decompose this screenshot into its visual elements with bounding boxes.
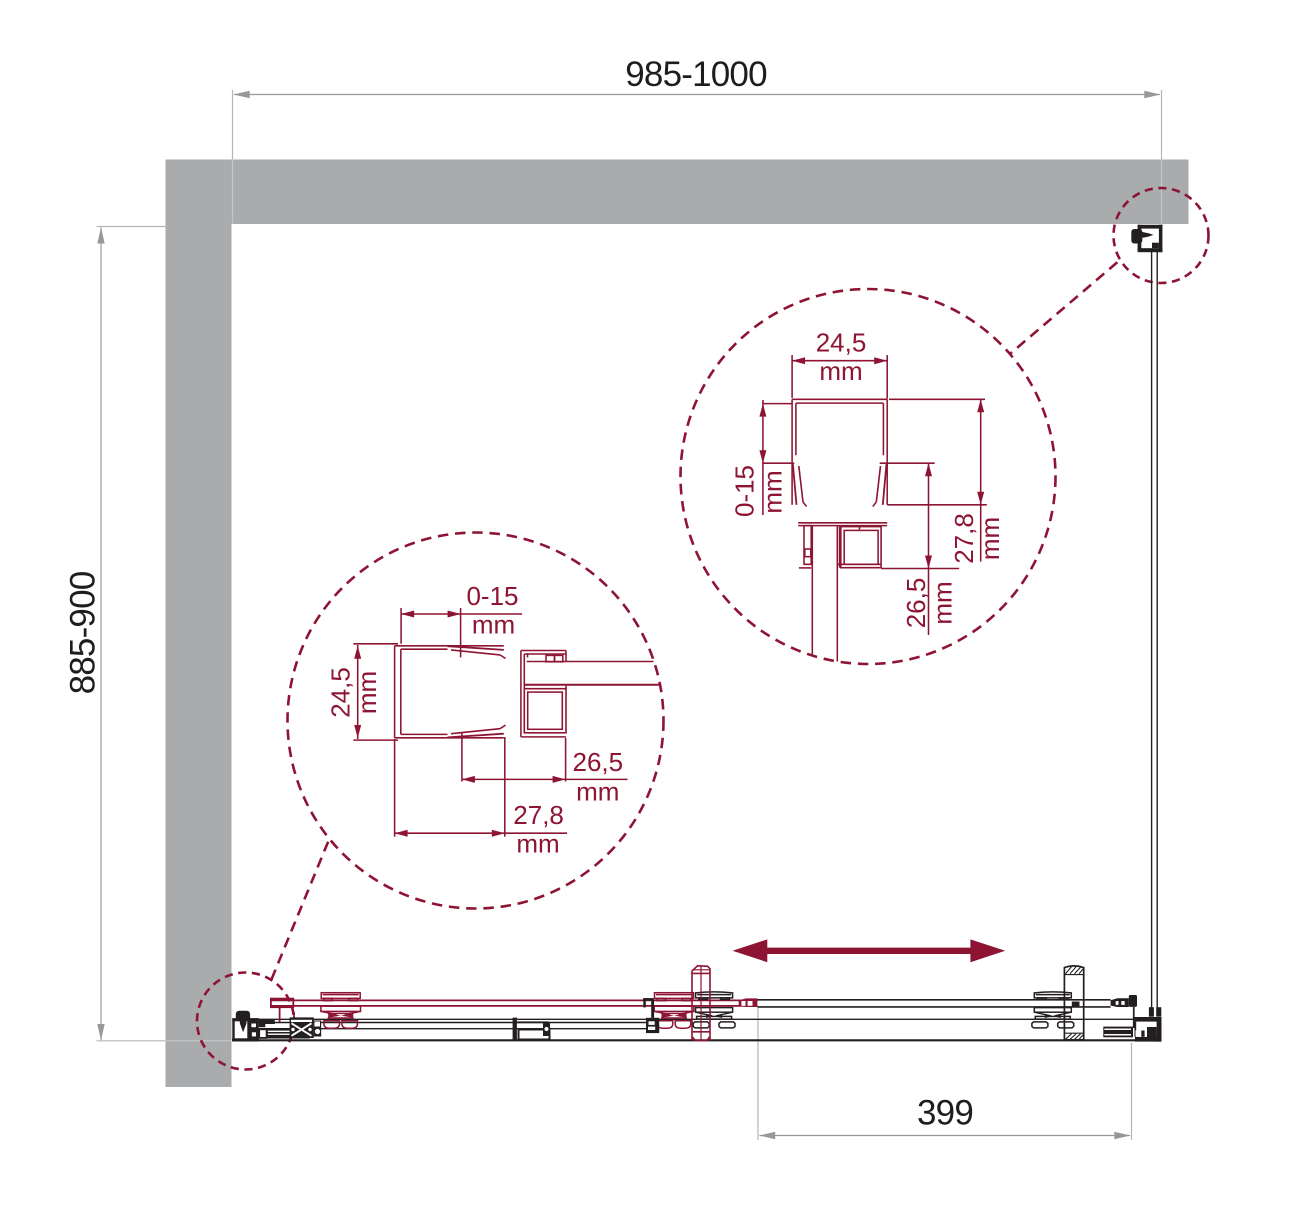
svg-text:mm: mm [576, 776, 619, 806]
svg-text:24,5: 24,5 [326, 667, 356, 718]
svg-text:mm: mm [757, 470, 787, 513]
svg-text:26,5: 26,5 [572, 747, 623, 777]
svg-text:mm: mm [352, 671, 382, 714]
svg-text:27,8: 27,8 [513, 800, 564, 830]
svg-text:24,5: 24,5 [816, 328, 867, 358]
svg-text:26,5: 26,5 [901, 578, 931, 629]
svg-text:mm: mm [516, 829, 559, 859]
svg-text:0-15: 0-15 [730, 465, 760, 517]
svg-text:mm: mm [819, 356, 862, 386]
svg-text:mm: mm [928, 581, 958, 624]
svg-text:885-900: 885-900 [64, 571, 103, 694]
svg-text:mm: mm [975, 517, 1005, 560]
svg-text:985-1000: 985-1000 [625, 55, 767, 94]
svg-text:399: 399 [917, 1094, 973, 1133]
svg-text:mm: mm [472, 610, 515, 640]
svg-text:0-15: 0-15 [466, 581, 518, 611]
